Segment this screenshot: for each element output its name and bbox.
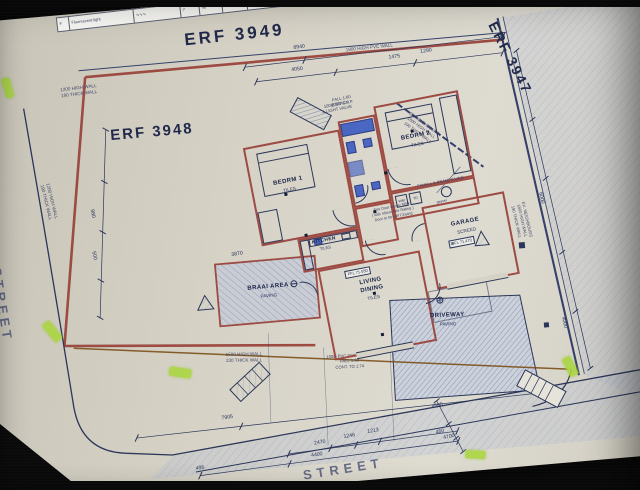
photo-frame: F Fluorescent light ∿∿∿ 7 40 3.2 300 ERF…	[0, 0, 640, 490]
room-living	[317, 250, 437, 360]
wall-label-line: 230 THICK WALL	[226, 357, 263, 363]
wall-label-bottom: 1500 HIGH WALL 230 THICK WALL	[226, 351, 263, 363]
highlight-mark	[465, 450, 485, 459]
photo-edge-bottom	[0, 481, 640, 490]
door-swing	[299, 279, 318, 298]
photo-edge-top	[0, 0, 640, 7]
point-symbol	[304, 234, 308, 238]
shower-symbol	[347, 160, 365, 178]
bed-pillow-line	[387, 112, 432, 122]
house-plan: WM TD geyser BEDRM 1	[224, 56, 570, 378]
point-symbol	[384, 171, 388, 175]
point-symbol	[284, 193, 288, 197]
plan-sheet: F Fluorescent light ∿∿∿ 7 40 3.2 300 ERF…	[0, 0, 640, 490]
stack-note: 100Ø STACK & LIGHT VALVE	[308, 96, 365, 117]
bed-pillow-line	[259, 153, 308, 164]
basin-symbol	[371, 181, 381, 191]
door-swing	[409, 223, 428, 242]
door-swing	[365, 237, 386, 258]
basin-symbol	[362, 138, 373, 149]
point-symbol	[381, 333, 385, 337]
